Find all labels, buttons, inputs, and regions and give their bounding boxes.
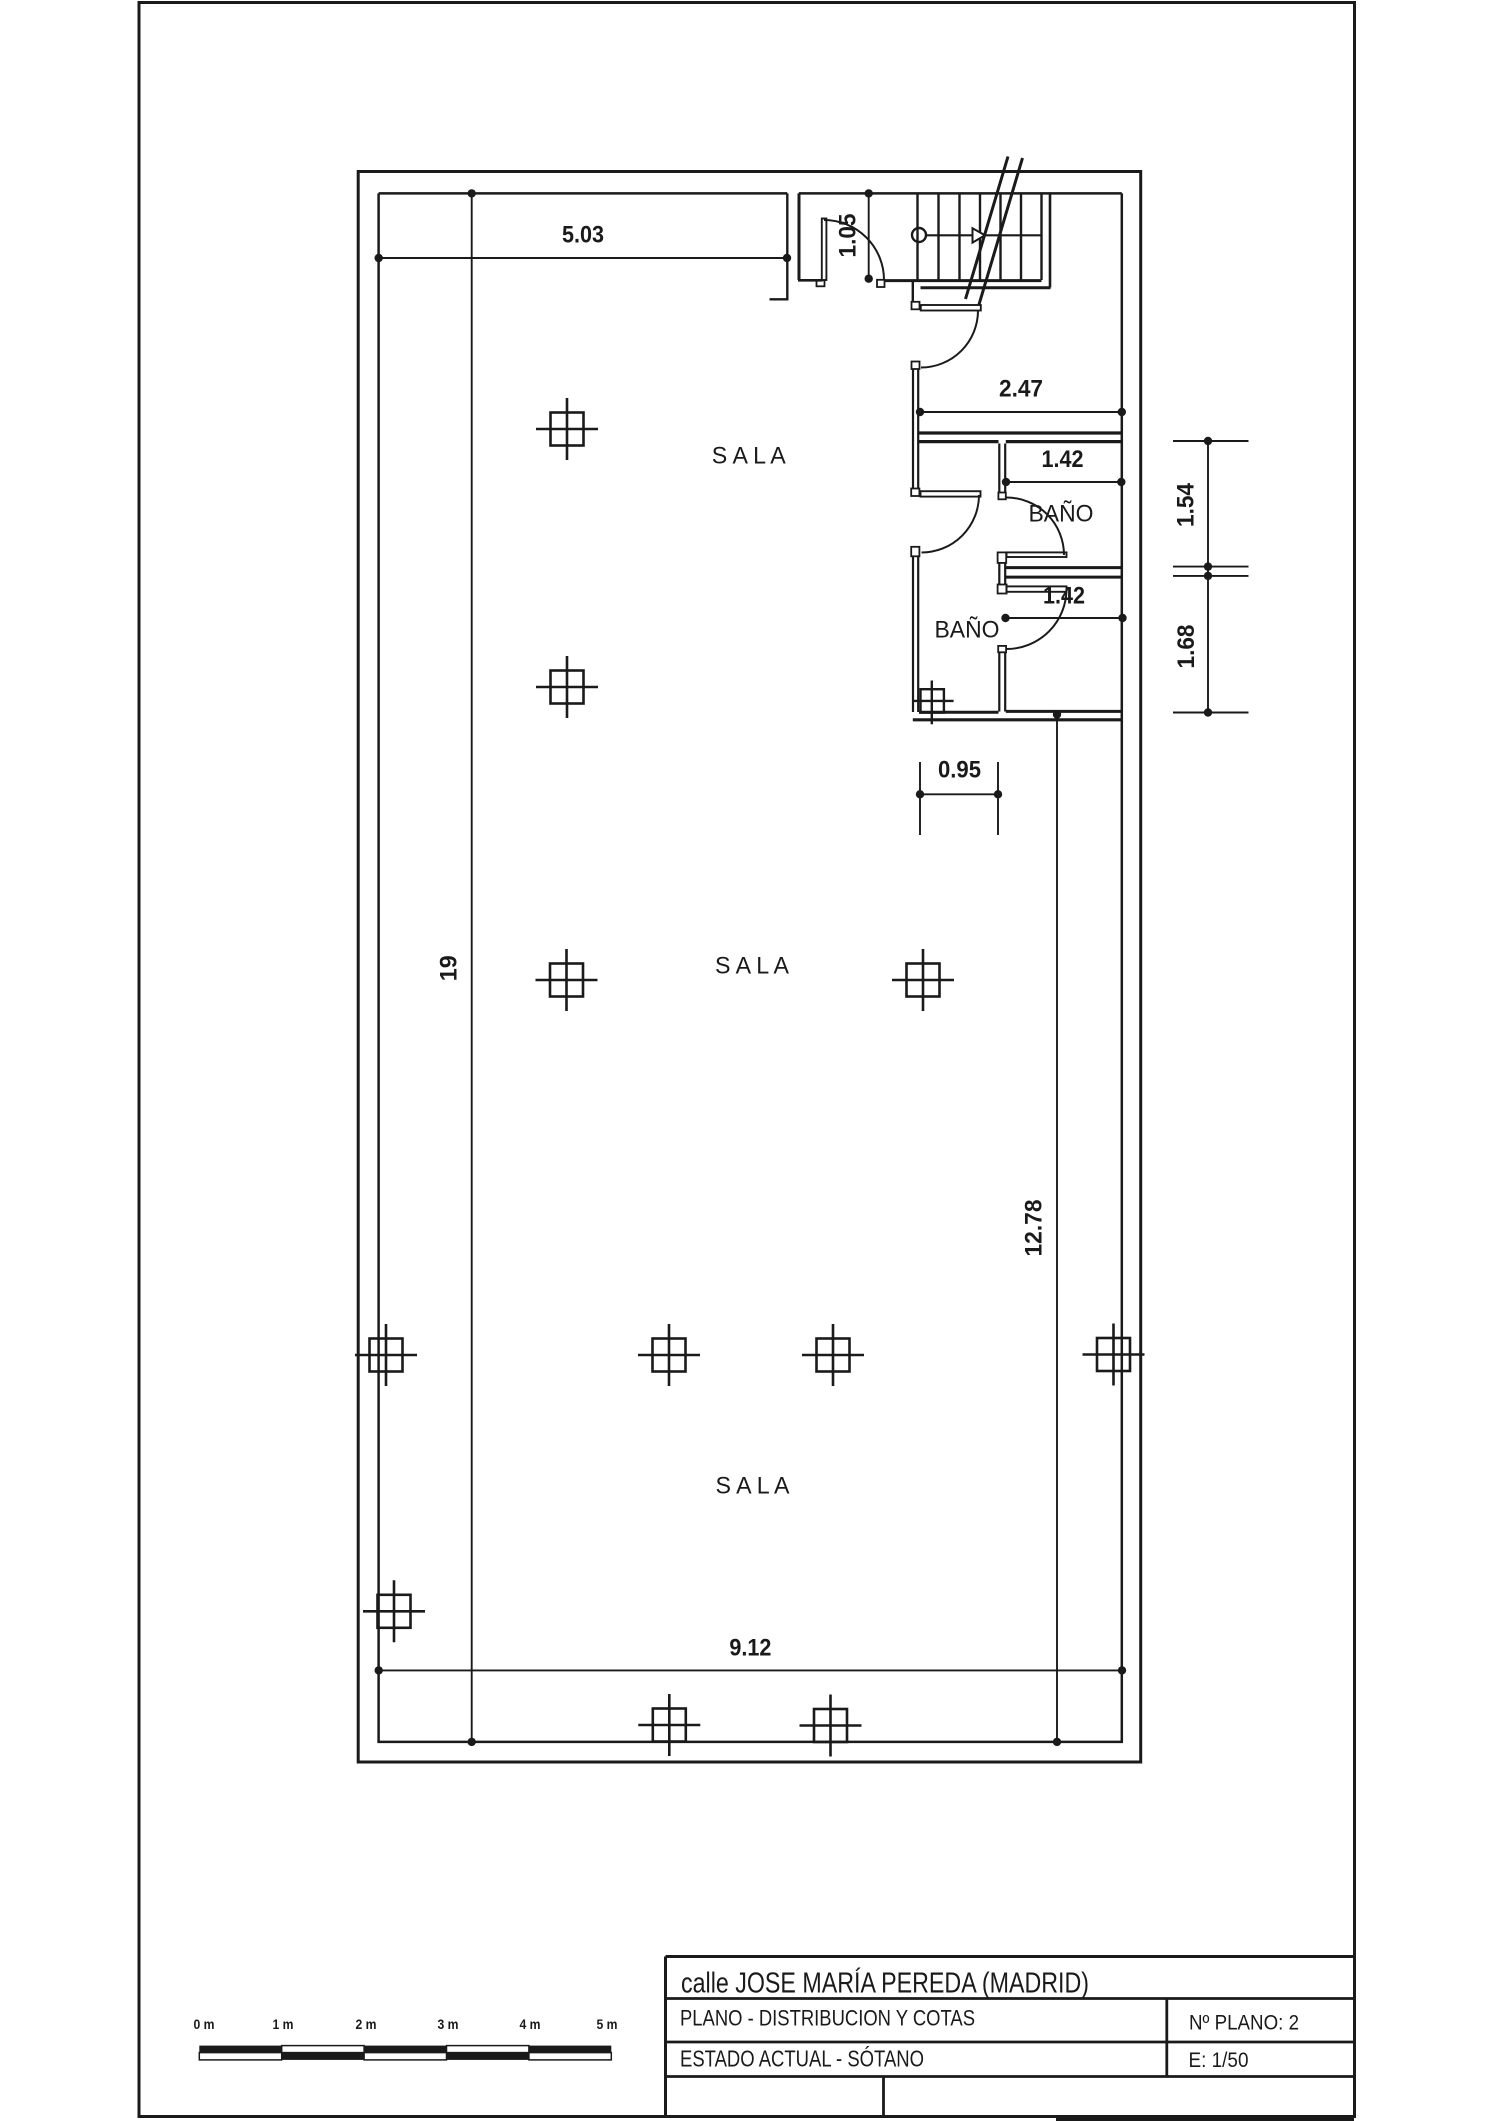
svg-text:12.78: 12.78: [1021, 1200, 1048, 1257]
svg-text:S A L A: S A L A: [716, 1472, 790, 1499]
svg-text:S A L A: S A L A: [712, 443, 786, 470]
svg-text:5.03: 5.03: [562, 222, 604, 249]
svg-text:BAÑO: BAÑO: [935, 617, 1000, 644]
svg-text:PLANO - DISTRIBUCION Y C: PLANO - DISTRIBUCION Y COTAS: [680, 2005, 975, 2030]
svg-text:2 m: 2 m: [356, 2016, 377, 2032]
svg-text:0 m: 0 m: [194, 2016, 215, 2032]
svg-text:2.47: 2.47: [999, 376, 1043, 403]
svg-text:E: 1/50: E: 1/50: [1189, 2048, 1249, 2072]
svg-text:ESTADO ACTUAL - SÓTANO: ESTADO ACTUAL - SÓTANO: [680, 2046, 924, 2072]
svg-text:3 m: 3 m: [438, 2016, 459, 2032]
svg-text:BAÑO: BAÑO: [1029, 501, 1094, 528]
svg-text:S A L A: S A L A: [715, 953, 789, 980]
svg-text:5 m: 5 m: [597, 2016, 618, 2032]
svg-text:Nº PLANO: 2: Nº PLANO: 2: [1189, 2012, 1299, 2035]
svg-text:1.42: 1.42: [1043, 583, 1085, 610]
svg-text:1.05: 1.05: [834, 214, 861, 258]
svg-text:19: 19: [436, 955, 463, 981]
svg-text:1.42: 1.42: [1042, 446, 1084, 473]
svg-text:0.95: 0.95: [938, 757, 981, 784]
svg-text:4 m: 4 m: [520, 2016, 541, 2032]
svg-text:1 m: 1 m: [273, 2016, 294, 2032]
svg-text:1.68: 1.68: [1173, 625, 1200, 669]
svg-text:calle JOSE MARÍA PEREDA (: calle JOSE MARÍA PEREDA (MADRID): [681, 1967, 1089, 2000]
svg-text:1.54: 1.54: [1173, 482, 1200, 527]
svg-text:9.12: 9.12: [729, 1635, 771, 1662]
